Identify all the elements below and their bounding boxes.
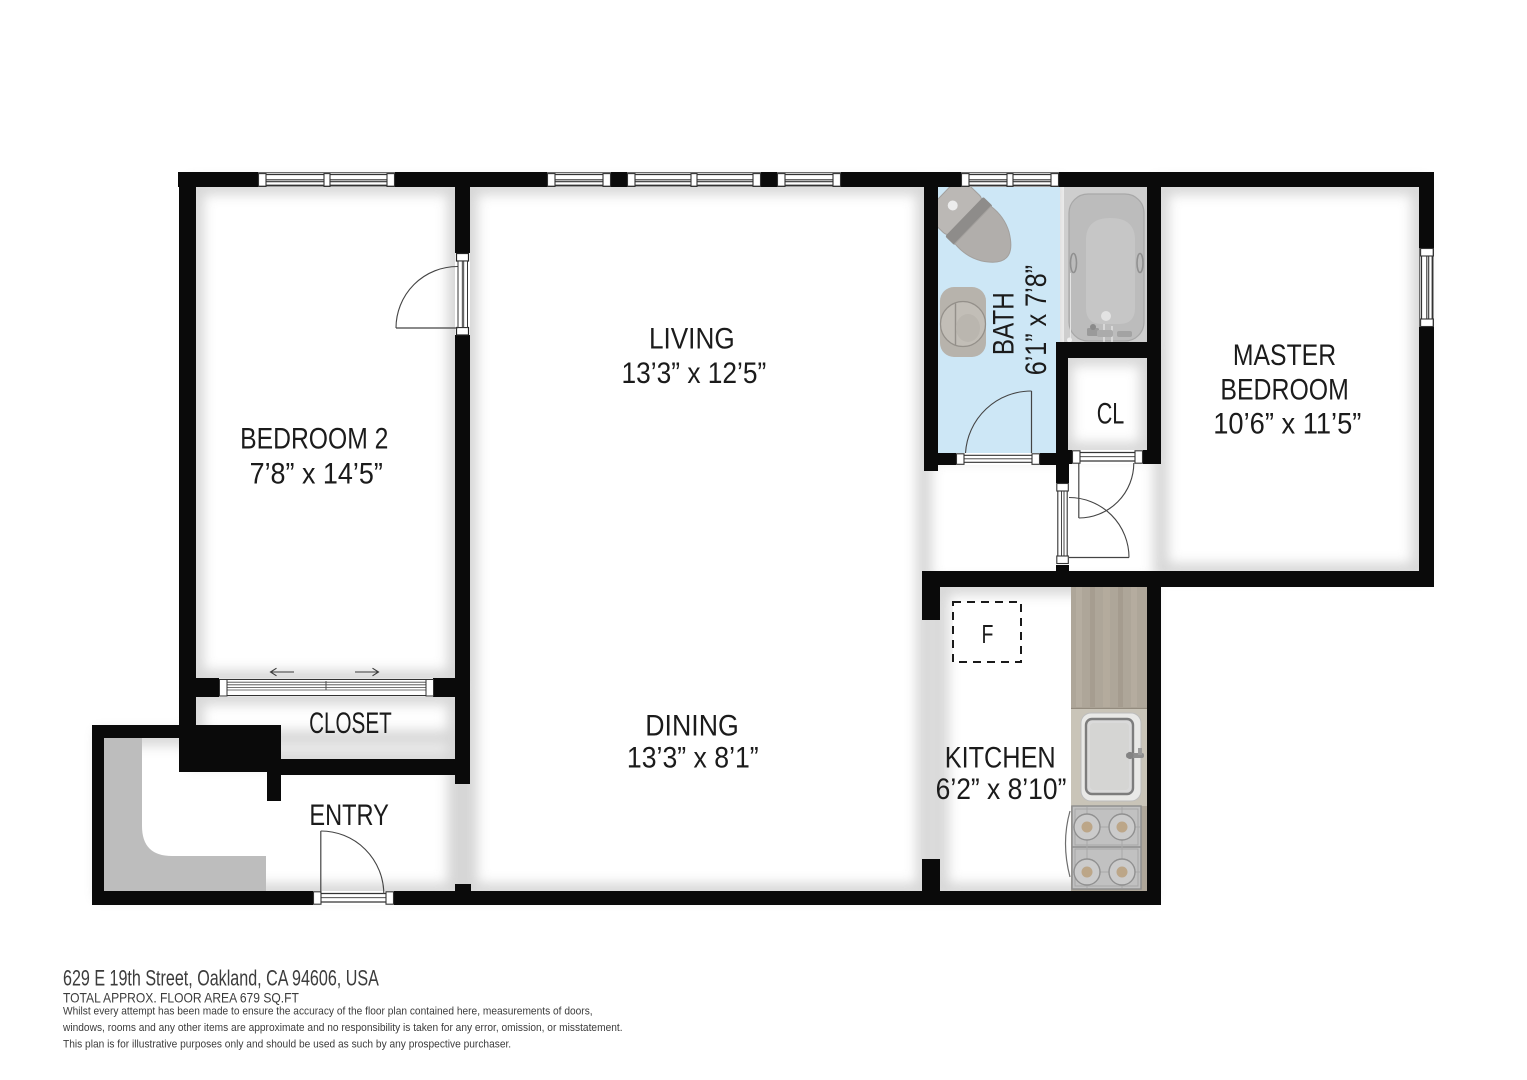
svg-text:windows, rooms and any other i: windows, rooms and any other items are a… — [62, 1022, 623, 1034]
svg-text:Whilst every attempt has been: Whilst every attempt has been made to en… — [63, 1005, 593, 1017]
svg-text:629 E 19th Street, Oakland, CA: 629 E 19th Street, Oakland, CA 94606, US… — [63, 967, 379, 991]
svg-text:DINING: DINING — [645, 709, 739, 743]
svg-text:10’6” x 11’5”: 10’6” x 11’5” — [1213, 407, 1361, 440]
svg-text:CL: CL — [1097, 396, 1125, 430]
svg-text:CLOSET: CLOSET — [309, 707, 392, 740]
svg-text:LIVING: LIVING — [649, 322, 735, 355]
svg-text:13’3” x 12’5”: 13’3” x 12’5” — [622, 355, 767, 389]
svg-text:F: F — [981, 619, 993, 648]
svg-text:ENTRY: ENTRY — [309, 798, 388, 831]
svg-text:BATH: BATH — [986, 292, 1020, 355]
svg-text:7’8” x 14’5”: 7’8” x 14’5” — [250, 457, 383, 491]
svg-text:13’3” x 8’1”: 13’3” x 8’1” — [627, 741, 759, 775]
svg-text:This plan is for illustrative: This plan is for illustrative purposes o… — [63, 1038, 511, 1050]
svg-text:TOTAL APPROX. FLOOR AREA 679 S: TOTAL APPROX. FLOOR AREA 679 SQ.FT — [63, 990, 299, 1006]
svg-text:6’2” x 8’10”: 6’2” x 8’10” — [936, 772, 1067, 806]
svg-text:6’1” x 7’8”: 6’1” x 7’8” — [1019, 265, 1053, 375]
svg-text:KITCHEN: KITCHEN — [945, 740, 1056, 774]
svg-text:MASTER: MASTER — [1233, 338, 1336, 372]
svg-text:BEDROOM 2: BEDROOM 2 — [240, 421, 388, 455]
svg-text:BEDROOM: BEDROOM — [1220, 372, 1348, 406]
